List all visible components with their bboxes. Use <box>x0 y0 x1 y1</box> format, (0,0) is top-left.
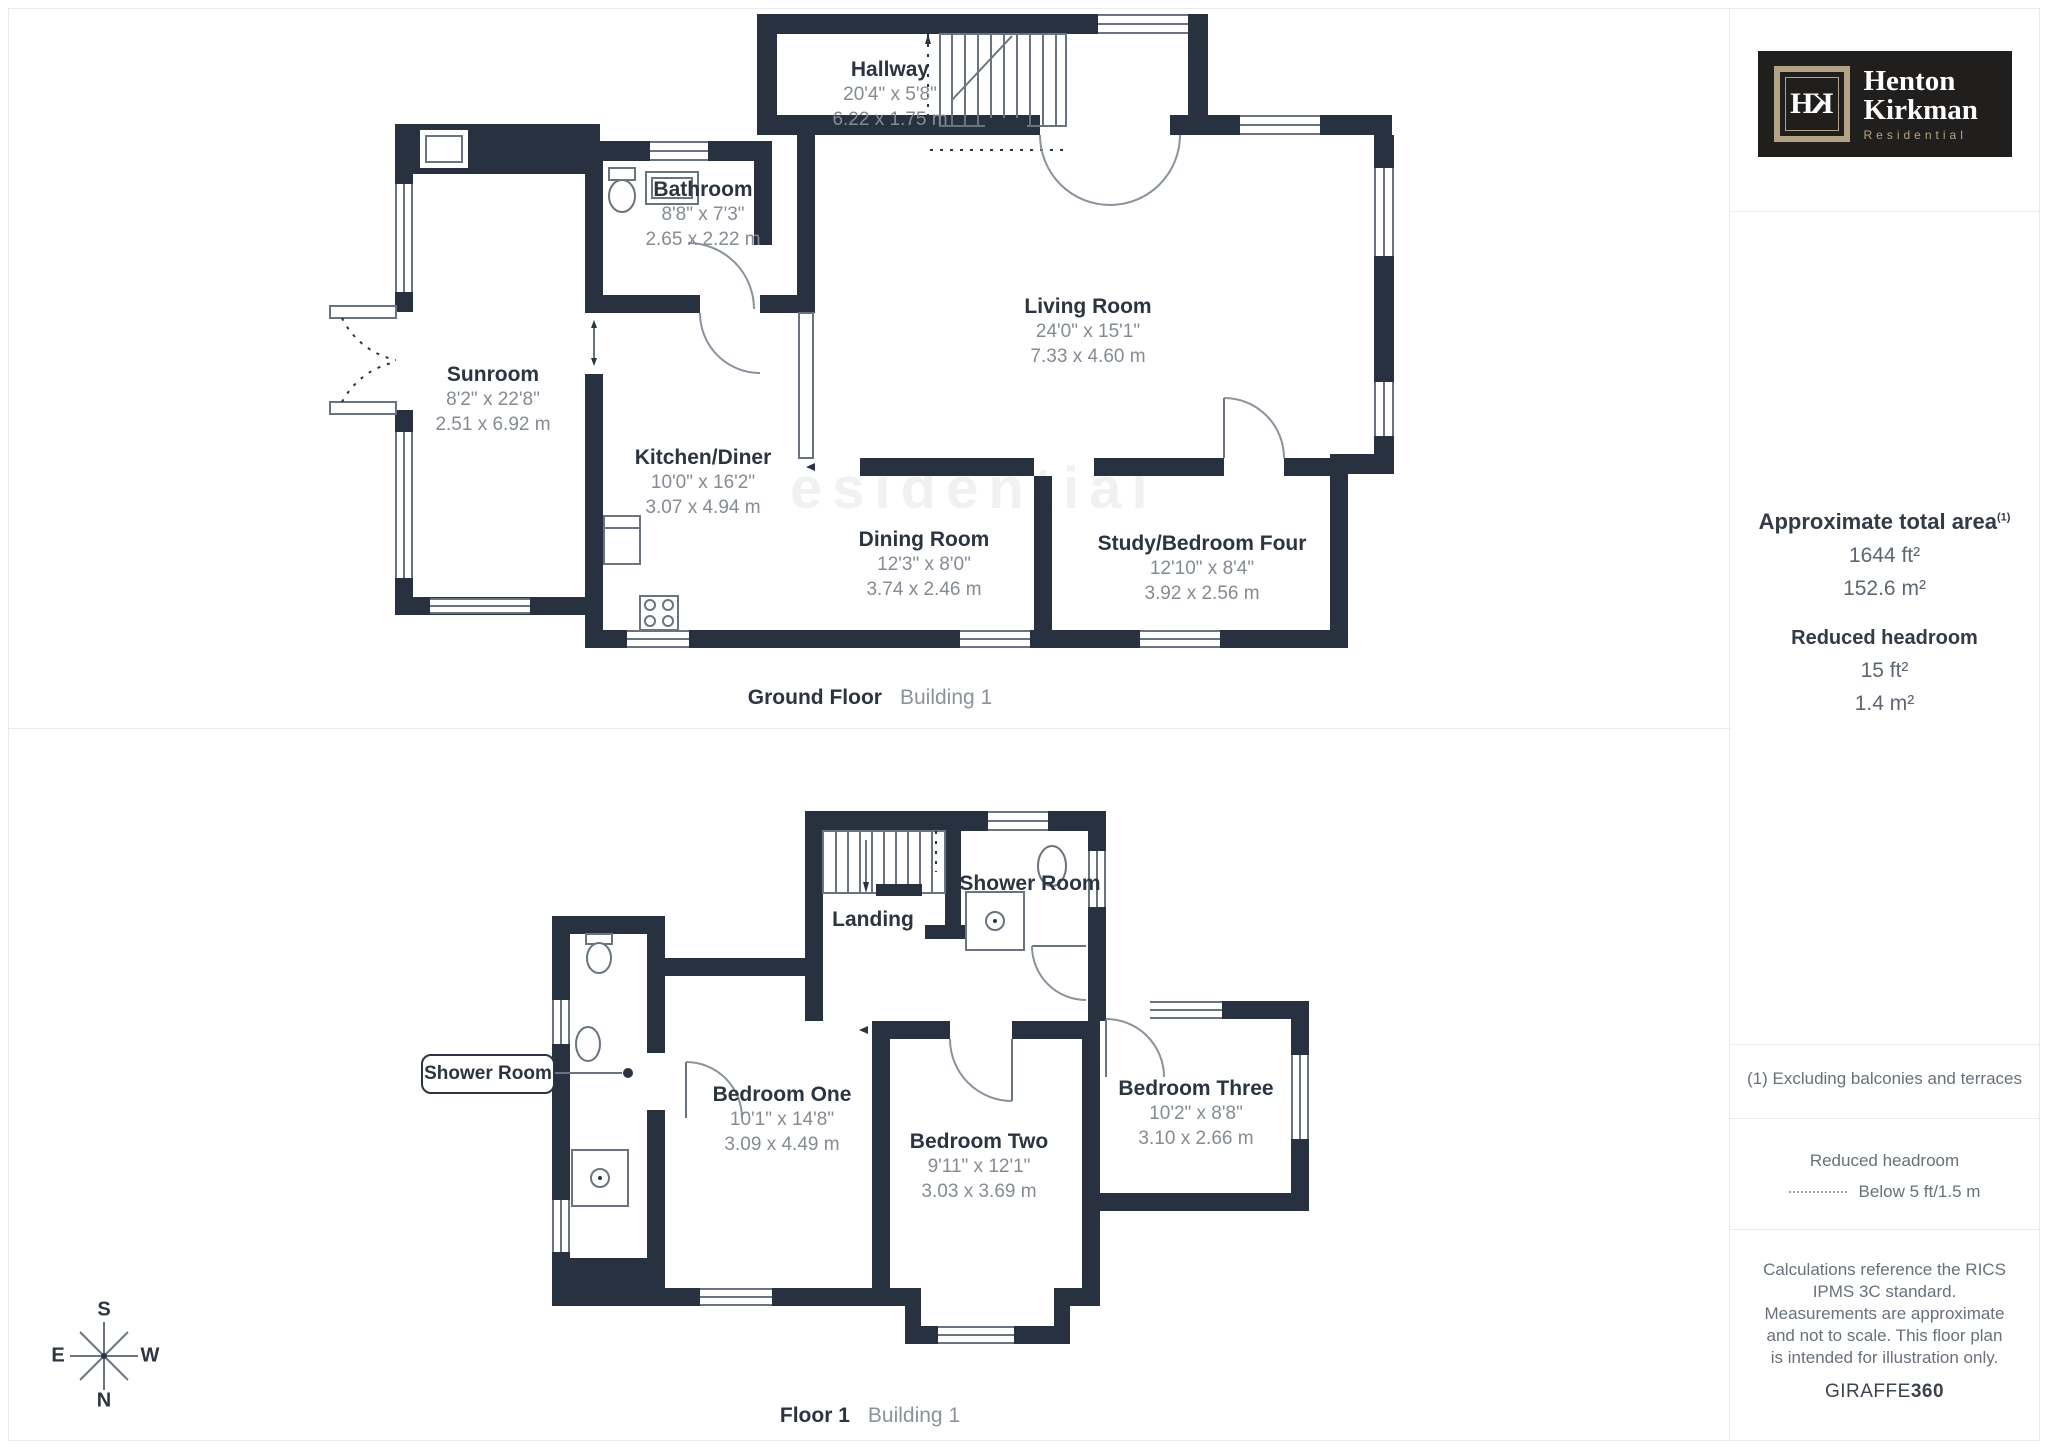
room-label-bedroom-three: Bedroom Three 10'2" x 8'8" 3.10 x 2.66 m <box>1118 1077 1273 1151</box>
room-label-bedroom-two: Bedroom Two 9'11" x 12'1" 3.03 x 3.69 m <box>910 1130 1048 1204</box>
room-label-bedroom-one: Bedroom One 10'1" x 14'8" 3.09 x 4.49 m <box>713 1083 852 1157</box>
ground-floor-caption: Ground FloorBuilding 1 <box>748 686 992 710</box>
room-label-shower-room: Shower Room <box>959 872 1100 896</box>
floorplan-drawing: esidential <box>0 0 2048 1449</box>
room-label-hallway: Hallway 20'4" x 5'8" 6.22 x 1.75 m <box>832 58 947 132</box>
room-callout-shower-room: Shower Room <box>421 1054 555 1094</box>
compass-west: W <box>141 1345 160 1368</box>
watermark-text: esidential <box>790 456 1158 521</box>
floorplan-page: { "brand": { "monogram_h": "H", "monogra… <box>0 0 2048 1449</box>
compass-north: N <box>97 1390 111 1413</box>
room-label-study-bedroom-four: Study/Bedroom Four 12'10" x 8'4" 3.92 x … <box>1098 532 1307 606</box>
room-label-bathroom: Bathroom 8'8" x 7'3" 2.65 x 2.22 m <box>645 178 760 252</box>
first-floor-caption: Floor 1Building 1 <box>780 1404 960 1428</box>
room-label-landing: Landing <box>832 908 914 932</box>
room-label-living-room: Living Room 24'0" x 15'1" 7.33 x 4.60 m <box>1024 295 1151 369</box>
room-label-sunroom: Sunroom 8'2" x 22'8" 2.51 x 6.92 m <box>435 363 550 437</box>
floor1-stairs <box>823 831 945 896</box>
compass-south: S <box>97 1299 110 1322</box>
compass-icon <box>70 1322 138 1390</box>
compass-east: E <box>51 1345 64 1368</box>
room-label-kitchen-diner: Kitchen/Diner 10'0" x 16'2" 3.07 x 4.94 … <box>635 446 772 520</box>
room-label-dining-room: Dining Room 12'3" x 8'0" 3.74 x 2.46 m <box>859 528 990 602</box>
